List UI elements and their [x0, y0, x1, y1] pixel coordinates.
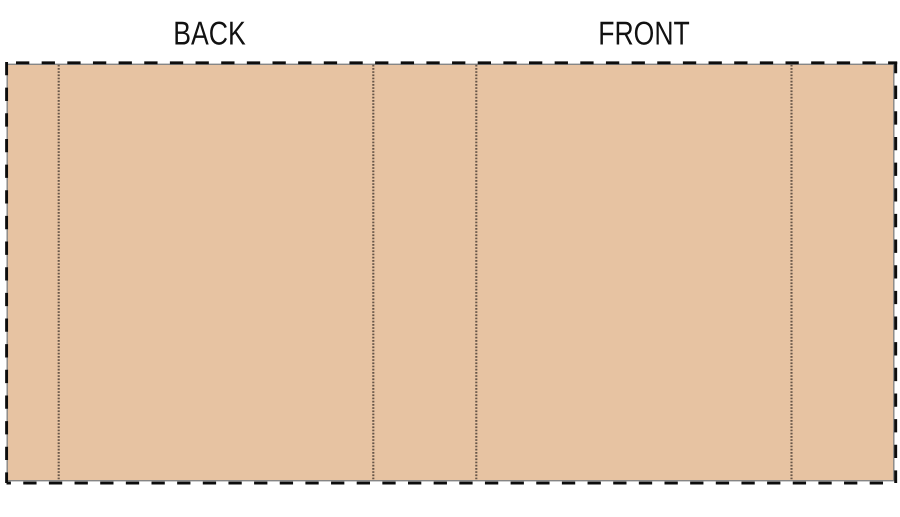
- svg-text:BACK: BACK: [173, 15, 246, 52]
- svg-text:FRONT: FRONT: [598, 15, 690, 52]
